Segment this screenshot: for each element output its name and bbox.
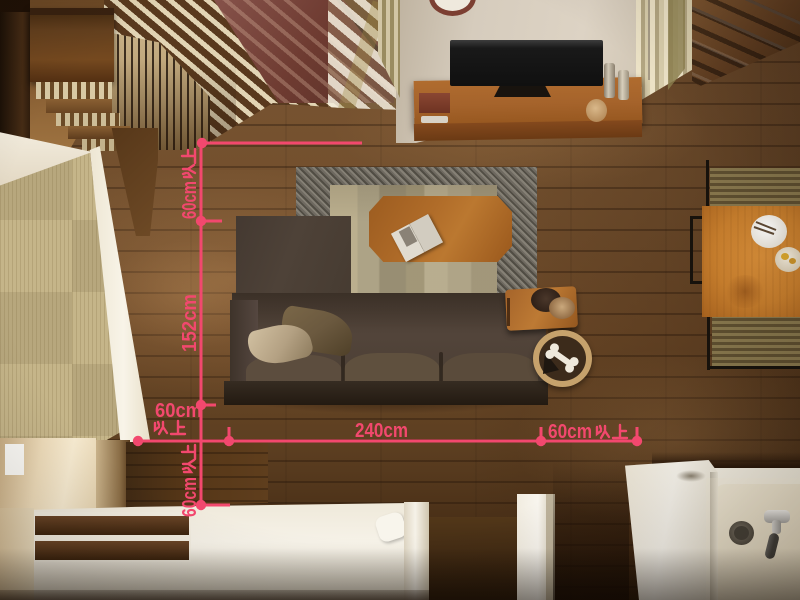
svg-text:60cm: 60cm [548,421,592,443]
svg-text:60cm: 60cm [155,400,202,422]
svg-text:152cm: 152cm [179,294,201,352]
svg-text:240cm: 240cm [355,420,408,442]
svg-text:60cm: 60cm [179,477,201,517]
svg-text:60cm: 60cm [179,181,201,219]
